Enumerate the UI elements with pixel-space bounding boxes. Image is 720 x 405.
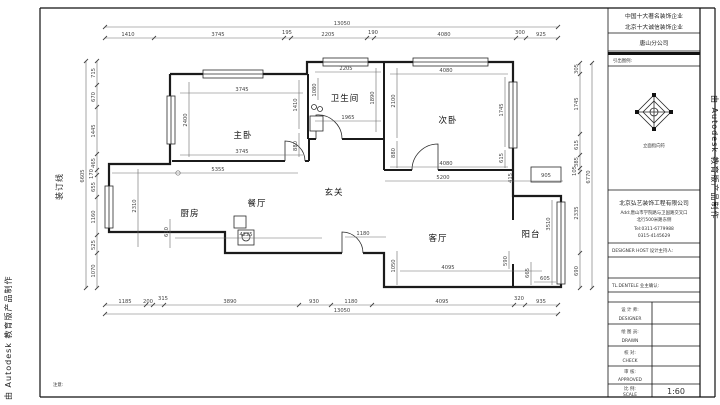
note-label: 注意:	[53, 381, 63, 388]
dim-top-0: 1410	[121, 32, 134, 38]
dim-master-left: 2400	[183, 113, 189, 126]
dim-balcony-left: 665	[525, 268, 531, 278]
dim-bottom-3: 3890	[223, 299, 236, 305]
dim-bottom-0: 1185	[118, 299, 131, 305]
row-check-zh: 校 对:	[624, 349, 636, 356]
dim-top-7: 925	[536, 32, 546, 38]
window-master-top	[203, 70, 263, 78]
elevation-compass-icon	[635, 93, 673, 131]
dim-left-total: 6605	[80, 169, 86, 182]
room-label-hall: 玄关	[324, 187, 343, 198]
dim-bottom-4: 930	[309, 299, 319, 305]
dim-right-1: 1745	[574, 97, 580, 110]
autodesk-stamp-right: 由 Autodesk 教育版产品制作	[710, 95, 720, 219]
room-label-living: 客厅	[428, 233, 447, 244]
dim-top-3: 2205	[321, 32, 334, 38]
room-label-bath: 卫生间	[331, 93, 360, 104]
dim-top-1: 3745	[211, 32, 224, 38]
dim-bath-right: 1890	[370, 91, 376, 104]
dim-master-right: 1410	[293, 98, 299, 111]
dim-bottom-7: 320	[514, 296, 524, 302]
dim-right-5: 2335	[574, 206, 580, 219]
window-bed2-right	[509, 82, 517, 148]
dim-left-0: 715	[91, 68, 97, 78]
dim-bottom-6: 4095	[435, 299, 448, 305]
room-label-master: 主卧	[233, 130, 252, 141]
dim-right-2: 615	[574, 140, 580, 150]
row-approved-zh: 审 核:	[624, 368, 636, 375]
dim-bed2-top: 4080	[439, 68, 452, 74]
dim-bottom-1: 200	[143, 299, 153, 305]
row-check-en: CHECK	[622, 358, 637, 364]
dim-left-8: 1070	[91, 264, 97, 277]
cad-floor-plan: 由 Autodesk 教育版产品制作 由 Autodesk 教育版产品制作 装订…	[0, 0, 720, 405]
dim-bottom-8: 935	[536, 299, 546, 305]
dim-left-5: 655	[91, 182, 97, 192]
dim-top-4: 190	[368, 30, 378, 36]
branch-name: 唐山分公司	[640, 39, 669, 47]
binding-line-label: 装订线	[54, 173, 64, 200]
dim-left-4: 170	[89, 169, 95, 179]
dim-balcony-height: 3510	[546, 217, 552, 230]
dim-top-6: 300	[515, 30, 525, 36]
dim-master-right-lower: 880	[293, 141, 299, 151]
dim-bed2-left-lower: 880	[391, 148, 397, 158]
window-kitchen-left	[105, 186, 113, 228]
dim-right-4: 105	[572, 166, 578, 176]
dim-top-2: 195	[282, 30, 292, 36]
titleblock: 中国十大著名装饰企业 北京十大诚信装饰企业 唐山分公司 引出图例: 立面指向符 …	[608, 12, 700, 398]
bath-sink-1	[312, 105, 317, 110]
row-scale-en: SCALE	[623, 392, 637, 398]
dim-right-total: 6770	[586, 170, 592, 183]
dim-bottom-total: 13050	[334, 308, 351, 314]
company-address-1: Add:唐山市学院路与卫国路交叉口	[620, 209, 687, 216]
row-drawn-zh: 绘 图 员:	[621, 328, 638, 335]
dim-right-6: 690	[574, 266, 580, 276]
room-label-dining: 餐厅	[247, 199, 266, 209]
row-approved-en: APPROVED	[618, 377, 643, 383]
room-label-balcony: 阳台	[521, 229, 540, 240]
bath-washer	[310, 116, 323, 131]
dim-left-3: 465	[91, 158, 97, 168]
kitchen-sink	[234, 216, 246, 228]
dim-bath-left: 1080	[312, 83, 318, 96]
dim-bed2-right-lower: 615	[499, 153, 505, 163]
dim-top-total: 13050	[334, 21, 351, 27]
legend-label: 引出图例:	[613, 57, 632, 64]
company-address-2: 北行500米路东侧	[637, 216, 672, 223]
company-tel-1: Tel:0311-6779988	[633, 226, 674, 232]
window-master-left	[167, 96, 175, 144]
dim-balcony-bottom: 605	[540, 276, 550, 282]
drawing-sheet: 由 Autodesk 教育版产品制作 由 Autodesk 教育版产品制作 装订…	[0, 0, 720, 405]
company-tel-2: 0315-4145629	[638, 233, 671, 239]
company-name: 北京弘艺装饰工程有限公司	[619, 199, 689, 207]
dim-bottom-5: 1180	[344, 299, 357, 305]
dim-right-3: 385	[574, 157, 580, 167]
dim-master-top: 3745	[235, 87, 248, 93]
dim-below-bed2: 5200	[436, 175, 449, 181]
honor-line-2: 北京十大诚信装饰企业	[625, 23, 683, 31]
bath-sink-2	[318, 107, 323, 112]
dim-living-bottom: 4095	[441, 265, 454, 271]
dim-dining-width: 4225	[239, 232, 252, 238]
dim-left-2: 1445	[91, 124, 97, 137]
titleblock-thick-divider	[608, 52, 700, 55]
room-label-kitchen: 厨房	[180, 208, 199, 219]
dim-notch: 415	[508, 173, 514, 183]
window-bath-top	[323, 58, 368, 66]
compass-caption: 立面指向符	[643, 142, 666, 149]
dim-left-7: 525	[91, 240, 97, 250]
dim-left-6: 1160	[91, 210, 97, 223]
dim-master-bottom: 3745	[235, 149, 248, 155]
window-bed2-top	[413, 58, 488, 66]
dim-living-left: 1050	[391, 259, 397, 272]
dim-hall-width: 5355	[211, 167, 224, 173]
row-designer-en: DESIGNER	[619, 316, 642, 322]
dim-living-right: 590	[503, 256, 509, 266]
room-label-bed2: 次卧	[438, 115, 457, 126]
honor-line-1: 中国十大著名装饰企业	[625, 12, 683, 20]
row-scale-zh: 比 例:	[624, 385, 636, 392]
dim-bottom-2: 315	[158, 296, 168, 302]
dim-shaft: 905	[541, 173, 551, 179]
dim-kitchen-door: 610	[164, 227, 170, 237]
door-bed2	[412, 144, 438, 170]
client-confirm-label: TL.DENTELE 业主确认:	[611, 282, 659, 289]
row-drawn-en: DRAWN	[622, 338, 639, 344]
dim-left-1: 670	[91, 92, 97, 102]
dim-kitchen-height: 2310	[132, 199, 138, 212]
dim-hall-depth: 1180	[356, 231, 369, 237]
dim-right-0: 305	[574, 64, 580, 74]
dim-bath-bottom: 1965	[341, 115, 354, 121]
autodesk-stamp-left: 由 Autodesk 教育版产品制作	[3, 276, 13, 400]
dim-bed2-right: 1745	[499, 103, 505, 116]
row-designer-zh: 设 计 师:	[621, 306, 638, 313]
dim-bath-top: 2205	[339, 66, 352, 72]
window-balcony-right	[557, 202, 565, 284]
dim-top-5: 4080	[437, 32, 450, 38]
dim-bed2-left: 2100	[391, 94, 397, 107]
row-scale-value: 1:60	[667, 387, 685, 396]
dim-bed2-bottom: 4080	[439, 161, 452, 167]
designer-host-label: DESIGNER HOST 设计主持人:	[612, 247, 673, 254]
edge-stamps: 由 Autodesk 教育版产品制作 由 Autodesk 教育版产品制作 装订…	[3, 95, 720, 400]
